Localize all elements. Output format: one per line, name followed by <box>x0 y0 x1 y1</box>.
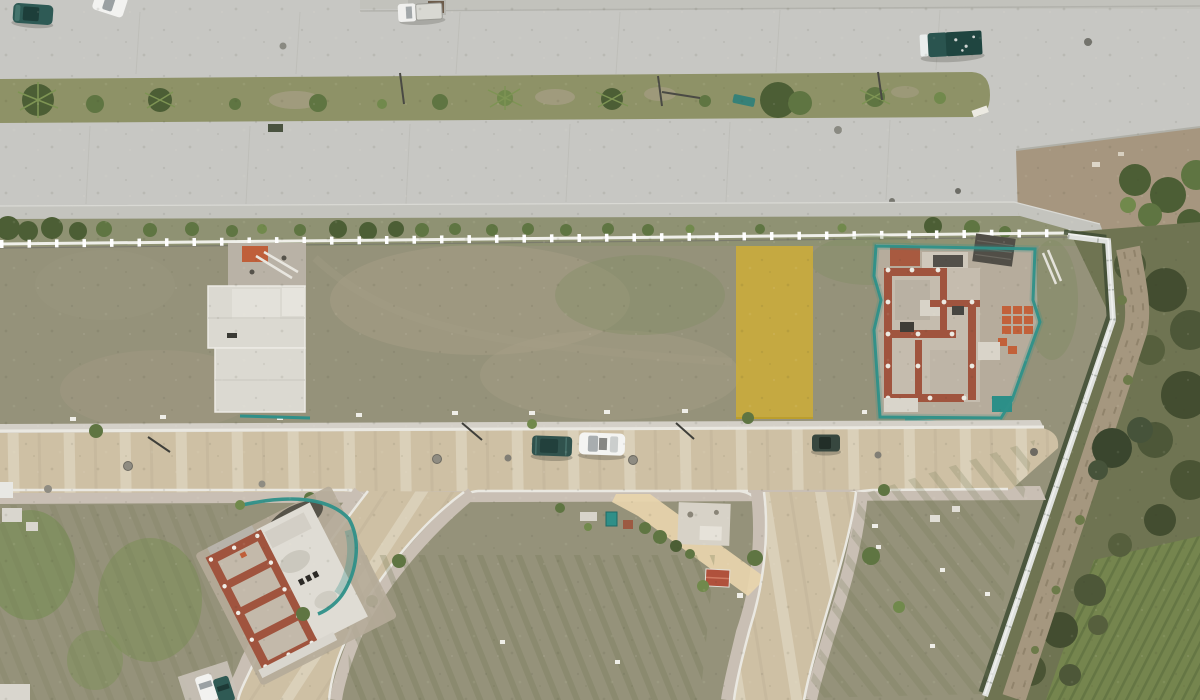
aerial-photo-canvas <box>0 0 1200 700</box>
photo-grain <box>0 0 1200 700</box>
aerial-photo <box>0 0 1200 700</box>
